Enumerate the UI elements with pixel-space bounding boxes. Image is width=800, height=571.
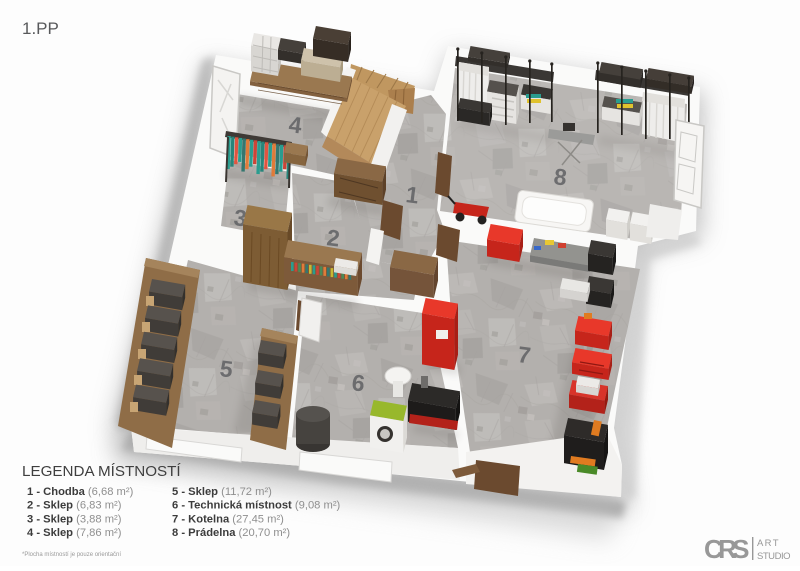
svg-text:3 - Sklep (3,88 m²): 3 - Sklep (3,88 m²) xyxy=(27,513,122,525)
svg-text:CRS: CRS xyxy=(704,534,749,564)
svg-text:STUDIO: STUDIO xyxy=(757,551,791,562)
svg-text:*Plocha místností je pouze ori: *Plocha místností je pouze orientační xyxy=(22,552,121,558)
svg-text:ART: ART xyxy=(757,538,781,549)
svg-text:1 - Chodba (6,68 m²): 1 - Chodba (6,68 m²) xyxy=(27,486,134,498)
svg-text:5 - Sklep (11,72 m²): 5 - Sklep (11,72 m²) xyxy=(172,486,272,498)
svg-text:1.PP: 1.PP xyxy=(22,19,59,38)
svg-text:2 - Sklep (6,83 m²): 2 - Sklep (6,83 m²) xyxy=(27,500,122,512)
svg-text:6 - Technická místnost (9,08 m: 6 - Technická místnost (9,08 m²) xyxy=(172,500,341,512)
svg-text:4 - Sklep (7,86 m²): 4 - Sklep (7,86 m²) xyxy=(27,527,122,539)
svg-text:7 - Kotelna (27,45 m²): 7 - Kotelna (27,45 m²) xyxy=(172,513,284,525)
svg-text:LEGENDA MÍSTNOSTÍ: LEGENDA MÍSTNOSTÍ xyxy=(22,463,181,480)
svg-text:8 - Prádelna (20,70 m²): 8 - Prádelna (20,70 m²) xyxy=(172,527,290,539)
